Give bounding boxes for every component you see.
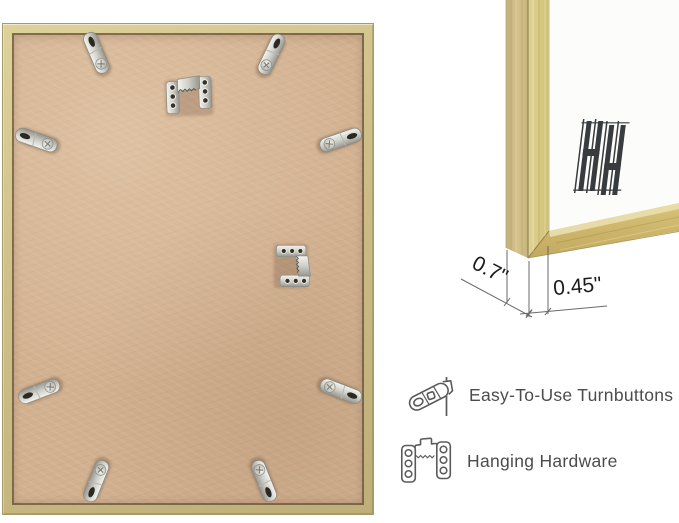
turnbutton [80, 30, 114, 79]
feature-turnbuttons: Easy-To-Use Turnbuttons [400, 370, 673, 420]
product-image: 0.7" 0.45" Easy-To-Use Turnbuttons [0, 0, 679, 523]
turnbutton [247, 455, 280, 504]
hanging-hardware-icon [400, 437, 452, 485]
turnbutton [16, 374, 66, 407]
turnbutton [314, 125, 364, 156]
turnbutton [315, 374, 365, 407]
face-width-measurement-label: 0.45" [552, 273, 602, 300]
turnbutton [13, 125, 63, 156]
frame-mat [549, 0, 679, 231]
turnbutton [80, 455, 113, 504]
corner-detail: 0.7" 0.45" [440, 0, 679, 330]
turnbutton [253, 31, 289, 80]
sawtooth-hanger [164, 75, 213, 117]
depth-measurement-label: 0.7" [468, 252, 511, 289]
frame-hardware [2, 23, 374, 515]
feature-hanging-hardware: Hanging Hardware [400, 435, 618, 487]
sawtooth-hanger [274, 244, 311, 288]
frame-back-photo [2, 23, 374, 515]
feature-label: Hanging Hardware [467, 451, 618, 472]
turnbutton-icon [400, 372, 454, 418]
feature-label: Easy-To-Use Turnbuttons [469, 385, 673, 406]
